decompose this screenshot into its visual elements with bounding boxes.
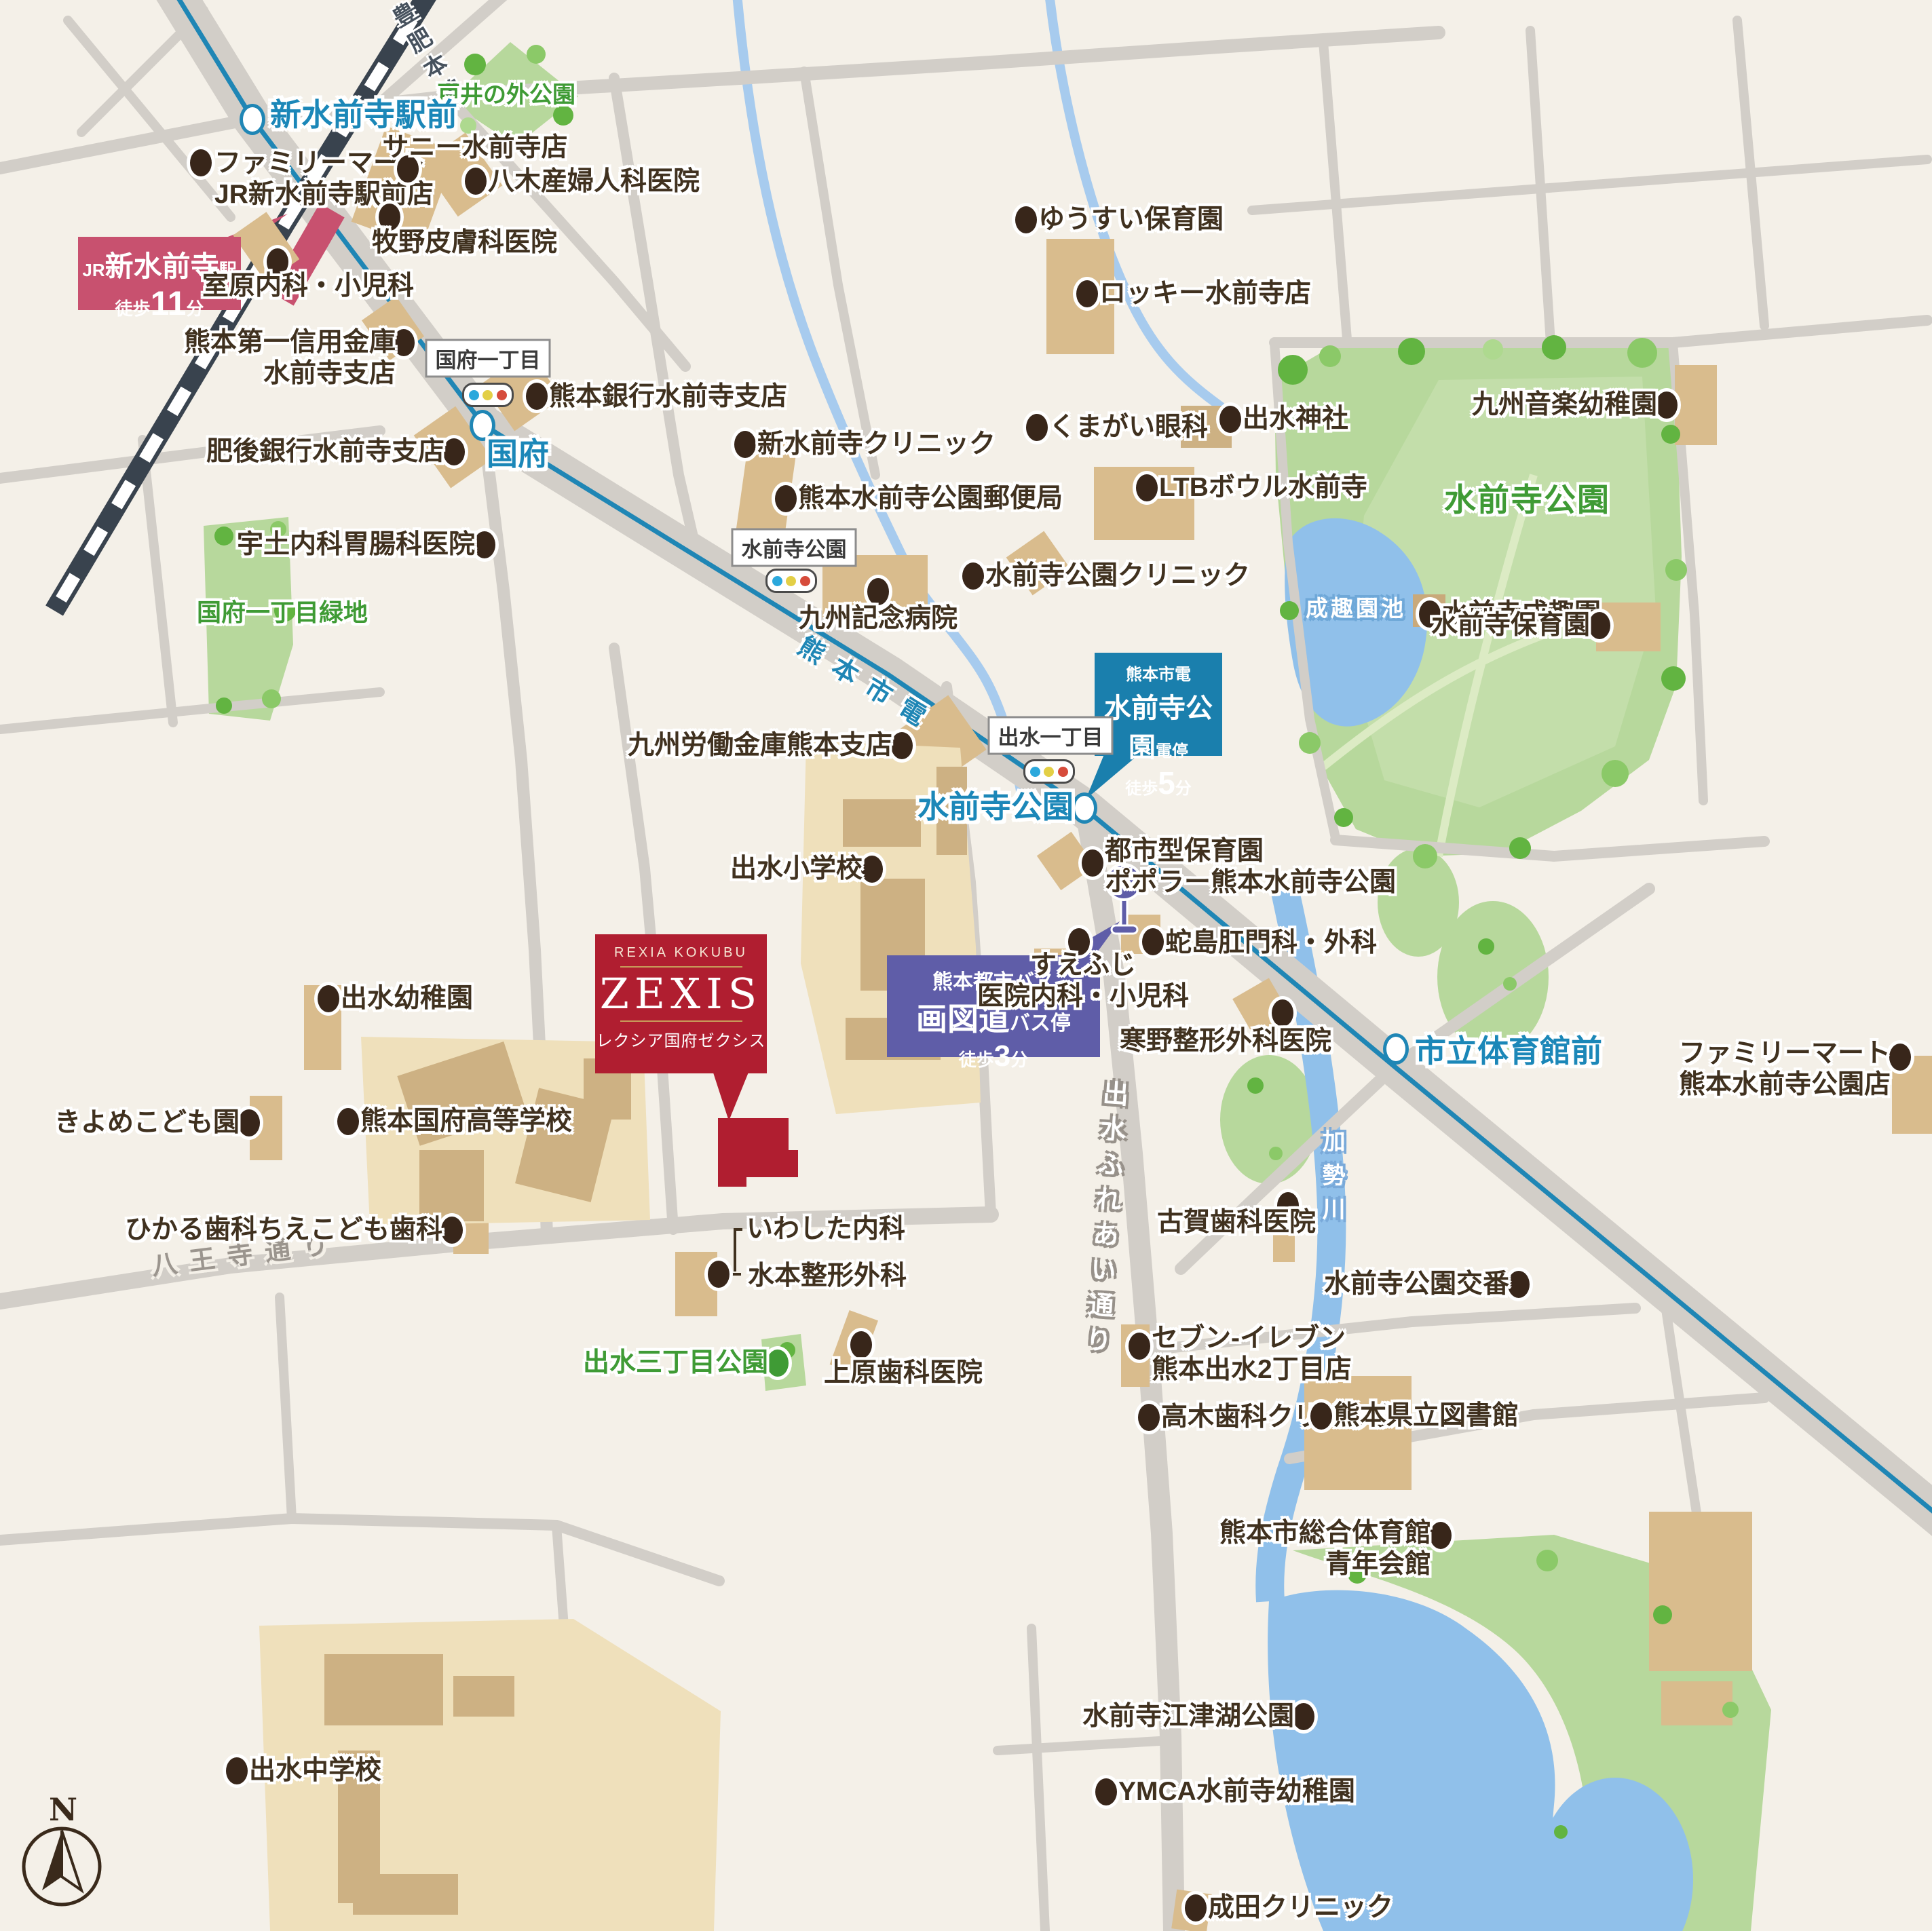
poi-label: 肥後銀行水前寺支店 [206, 436, 444, 467]
poi-dot [1026, 414, 1048, 441]
poi-label: 熊本第一信用金庫水前寺支店 [184, 327, 396, 389]
poi-dot [474, 531, 495, 558]
poi-dot [962, 562, 984, 590]
compass-rose [19, 1824, 107, 1912]
poi-dot [1015, 206, 1037, 233]
poi-label: 宇土内科胃腸科医院 [237, 529, 475, 560]
poi-dot [441, 1217, 463, 1244]
compass-north-label: N [49, 1791, 77, 1828]
signal-name-box: 国府一丁目 [425, 339, 551, 378]
poi-label: 上原歯科医院 [824, 1358, 983, 1389]
poi-label: 八木産婦人科医院 [488, 166, 700, 197]
poi-dot [238, 1109, 260, 1136]
signal-name-box: 出水一丁目 [988, 716, 1114, 755]
kokufu-ryokuchi-label: 国府一丁目緑地 [197, 593, 368, 628]
poi-label: LTBボウル水前寺 [1159, 472, 1367, 503]
traffic-light-icon [1023, 759, 1075, 784]
poi-dot [190, 149, 212, 176]
zexis-rule-top [620, 966, 742, 968]
poi-label: くまがい眼科 [1049, 412, 1208, 443]
poi-label: 水前寺公園クリニック [985, 560, 1250, 592]
poi-label: 出水小学校 [730, 854, 863, 885]
poi-dot [861, 856, 883, 883]
poi-label: 熊本市総合体育館青年会館 [1219, 1518, 1431, 1580]
poi-dot [891, 732, 913, 759]
tram-stop-label: 国府 [487, 429, 549, 474]
poi-dot [1293, 1703, 1314, 1730]
poi-dot [1095, 1778, 1117, 1805]
toi-park-label: 戸井の外公園 [437, 76, 575, 109]
poi-label: 水前寺江津湖公園 [1082, 1701, 1294, 1732]
zexis-badge-pointer [713, 1071, 749, 1121]
poi-dot [1889, 1044, 1911, 1071]
poi-dot [337, 1108, 359, 1135]
poi-label: 熊本銀行水前寺支店 [549, 381, 787, 413]
poi-label: ファミリーマート熊本水前寺公園店 [1679, 1038, 1891, 1101]
poi-label: 熊本国府高等学校 [360, 1106, 572, 1137]
poi-dot [850, 1331, 872, 1358]
zexis-logo: ZEXIS [595, 973, 767, 1015]
traffic-light-icon [765, 569, 817, 593]
tram-stop-marker [1383, 1033, 1409, 1065]
tram-stop-label: 新水前寺駅前 [270, 90, 457, 135]
tram-badge-walk: 徒歩5分 [1095, 765, 1222, 801]
seishuen-pond-label: 成趣園池 [1306, 590, 1406, 623]
poi-label: 水前寺保育園 [1431, 610, 1590, 641]
poi-dot [1136, 474, 1158, 501]
poi-dot [226, 1757, 248, 1784]
kasegawa-river-label: 加勢川 [1315, 1129, 1348, 1231]
poi-label: いわした内科 [746, 1214, 905, 1245]
poi-label: 九州音楽幼稚園 [1472, 389, 1657, 421]
poi-label: 九州記念病院 [799, 603, 958, 634]
poi-label: 水本整形外科 [748, 1261, 907, 1292]
poi-label: ゆうすい保育園 [1038, 204, 1224, 235]
tram-stop-label: 市立体育館前 [1415, 1027, 1602, 1071]
poi-label: 室原内科・小児科 [202, 271, 414, 302]
suizenji-park-label: 水前寺公園 [1444, 474, 1610, 520]
poi-dot [393, 329, 415, 356]
tram-stop-label: 水前寺公園 [917, 782, 1074, 827]
poi-dot [1589, 612, 1610, 639]
poi-label: 出水神社 [1243, 404, 1348, 435]
poi-label: 熊本水前寺公園郵便局 [798, 483, 1063, 514]
poi-dot [443, 438, 465, 465]
poi-label: セブン-イレブン熊本出水2丁目店 [1152, 1323, 1352, 1385]
poi-dot [1082, 849, 1103, 877]
poi-dot [1076, 280, 1098, 307]
poi-dot [1310, 1402, 1332, 1430]
poi-dot [867, 578, 889, 605]
poi-dot [1138, 1404, 1160, 1431]
tram-stop-marker [1072, 792, 1097, 824]
poi-label: サニー水前寺店 [382, 132, 567, 164]
poi-label: 寒野整形外科医院 [1120, 1026, 1331, 1057]
poi-dot [1430, 1522, 1452, 1549]
poi-label: 新水前寺クリニック [757, 429, 996, 460]
poi-label: 水前寺公園交番 [1324, 1269, 1509, 1300]
poi-label: 都市型保育園ポポラー熊本水前寺公園 [1105, 836, 1396, 898]
poi-dot [734, 431, 756, 458]
poi-label: 古賀歯科医院 [1157, 1207, 1316, 1238]
tram-stop-badge: 熊本市電 水前寺公園電停 徒歩5分 [1095, 653, 1222, 756]
poi-dot [775, 485, 797, 512]
poi-label: 九州労働金庫熊本支店 [628, 730, 892, 761]
tram-badge-stop: 水前寺公園電停 [1095, 686, 1222, 765]
poi-dot [1272, 999, 1293, 1027]
map-canvas: JR新水前寺駅 徒歩11分 熊本市電 水前寺公園電停 徒歩5分 熊本都市バス 画… [0, 0, 1932, 1931]
poi-dot [1129, 1333, 1150, 1360]
poi-connector [729, 1229, 742, 1274]
poi-dot [465, 168, 487, 195]
signal-name-box: 水前寺公園 [732, 529, 857, 567]
poi-label: 牧野皮膚科医院 [372, 227, 557, 259]
poi-label: きよめこども園 [54, 1107, 240, 1139]
zexis-subtitle: レクシア国府ゼクシス [595, 1027, 767, 1051]
poi-dot [318, 985, 339, 1012]
poi-label: ロッキー水前寺店 [1099, 278, 1311, 309]
poi-dot [767, 1350, 789, 1377]
poi-dot [1508, 1271, 1530, 1298]
poi-label: 出水幼稚園 [341, 983, 473, 1014]
poi-label: 出水中学校 [249, 1755, 381, 1786]
poi-dot [1185, 1894, 1207, 1922]
poi-label: 蛇島肛門科・外科 [1165, 928, 1377, 959]
tram-badge-line: 熊本市電 [1095, 661, 1222, 685]
poi-label: ひかる歯科ちえこども歯科 [125, 1215, 442, 1246]
poi-dot [708, 1261, 730, 1288]
poi-dot [526, 383, 548, 410]
compass: N [19, 1791, 107, 1907]
zexis-property-badge: REXIA KOKUBU ZEXIS レクシア国府ゼクシス [595, 934, 767, 1073]
bus-badge-walk: 徒歩3分 [887, 1039, 1100, 1073]
poi-label: YMCA水前寺幼稚園 [1118, 1776, 1355, 1808]
zexis-site-building [718, 1118, 798, 1187]
zexis-eyebrow: REXIA KOKUBU [595, 945, 767, 961]
poi-label: 成田クリニック [1208, 1892, 1393, 1924]
poi-label: 出水三丁目公園 [583, 1347, 768, 1379]
poi-dot [1656, 391, 1678, 419]
poi-dot [1219, 406, 1241, 433]
poi-label: 熊本県立図書館 [1333, 1400, 1519, 1432]
tram-stop-marker [240, 104, 265, 135]
traffic-light-icon [462, 383, 514, 407]
zexis-rule-bottom [620, 1020, 742, 1022]
poi-label: すえふじ医院内科・小児科 [977, 950, 1189, 1012]
